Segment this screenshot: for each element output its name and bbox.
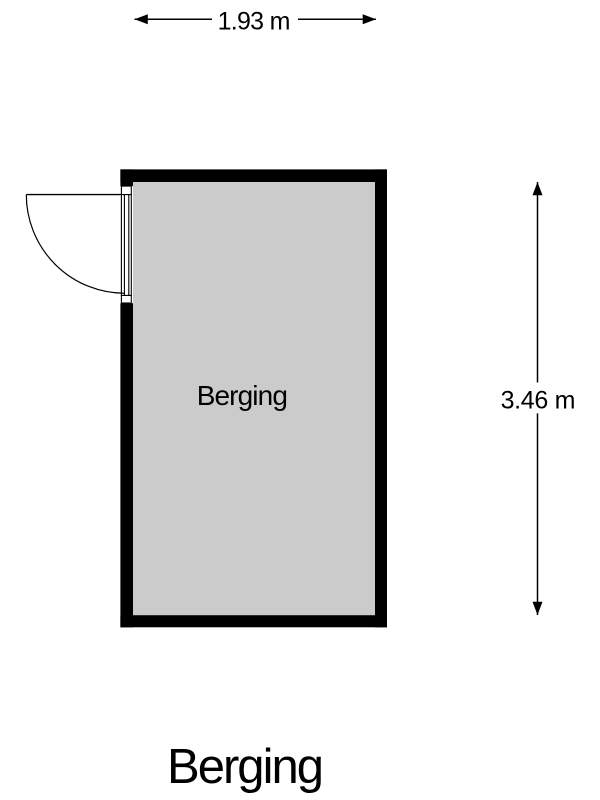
svg-text:3.46 m: 3.46 m — [501, 386, 576, 414]
svg-text:1.93 m: 1.93 m — [218, 7, 291, 35]
svg-text:Berging: Berging — [197, 380, 288, 411]
svg-text:Berging: Berging — [167, 740, 324, 794]
